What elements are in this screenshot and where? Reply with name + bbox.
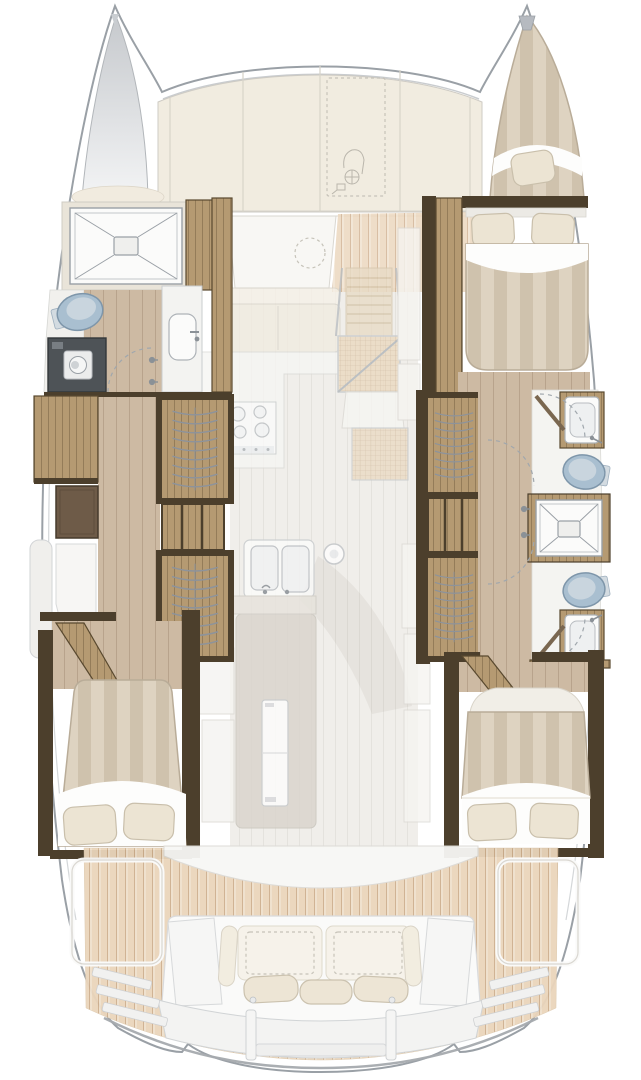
transom-post xyxy=(386,1010,396,1060)
sofa-armrest xyxy=(168,918,222,1006)
berth-pillow xyxy=(467,803,517,841)
starboard-bow-berth xyxy=(490,16,584,198)
burner-icon xyxy=(254,406,266,418)
seat-pillow xyxy=(353,976,408,1004)
cabin-wall xyxy=(444,652,459,858)
shelf-unit xyxy=(162,504,224,550)
berth-pillow xyxy=(471,213,515,247)
back-cushion xyxy=(326,926,410,980)
wardrobe-panel xyxy=(34,396,98,482)
starboard-hull xyxy=(416,196,612,858)
transom-post xyxy=(246,1010,256,1060)
faucet-icon xyxy=(285,590,289,594)
hanging-wardrobe xyxy=(422,552,486,662)
cabinet-wood xyxy=(186,200,214,290)
refrigerator xyxy=(262,700,288,806)
ghost-cabinet xyxy=(202,720,234,822)
saloon-sofa-backrest xyxy=(214,288,340,306)
floor-plan-canvas: Sailing catamaran interior layout floor … xyxy=(0,0,641,1080)
shower-drain xyxy=(558,521,580,537)
seat-pillow xyxy=(300,980,352,1004)
faucet-icon xyxy=(263,590,267,594)
berth-pillow xyxy=(531,213,575,247)
bulkhead xyxy=(40,612,116,621)
shared-shower xyxy=(522,494,610,562)
berth-head xyxy=(470,688,584,712)
hanging-wardrobe xyxy=(156,394,234,504)
starboard-midship xyxy=(416,378,612,668)
ghost-cabinet xyxy=(404,710,430,822)
sink-basin xyxy=(251,546,278,590)
bulkhead xyxy=(462,196,588,208)
bulkhead xyxy=(532,652,594,662)
back-cushion xyxy=(238,926,322,980)
catamaran-floor-plan: Sailing catamaran interior layout floor … xyxy=(0,0,641,1080)
swim-platform xyxy=(256,1044,386,1056)
sofa-armrest xyxy=(420,918,474,1006)
hanging-wardrobe xyxy=(422,392,486,498)
burner-icon xyxy=(255,423,269,437)
shower-drain xyxy=(114,237,138,255)
aft-bench-sofa xyxy=(162,916,480,1024)
berth-pillow xyxy=(529,803,579,839)
inboard-wall xyxy=(212,198,232,392)
cabin-wall xyxy=(38,630,53,856)
washing-machine xyxy=(48,338,106,392)
galley-sink-unit xyxy=(244,540,314,598)
cabin-wall xyxy=(422,196,436,422)
wardrobe-frame xyxy=(34,478,98,484)
corridor-floor xyxy=(478,378,532,664)
sink-basin xyxy=(282,546,309,592)
berth-pillow xyxy=(123,803,175,842)
forward-lounge-seat xyxy=(228,216,336,288)
ghost-cabinet xyxy=(398,228,420,360)
burner-icon xyxy=(234,426,246,438)
counter-band xyxy=(232,596,316,614)
hatch-grating xyxy=(352,428,408,480)
berth-pillow xyxy=(63,804,118,846)
dresser-cabinet xyxy=(56,486,98,538)
cabin-wall xyxy=(588,650,604,858)
starboard-aft-cabin xyxy=(444,650,604,858)
bow-berth-pillow xyxy=(510,149,556,187)
washbasin-column xyxy=(162,286,202,392)
shelf-unit xyxy=(428,498,480,552)
washbasin xyxy=(169,314,196,360)
